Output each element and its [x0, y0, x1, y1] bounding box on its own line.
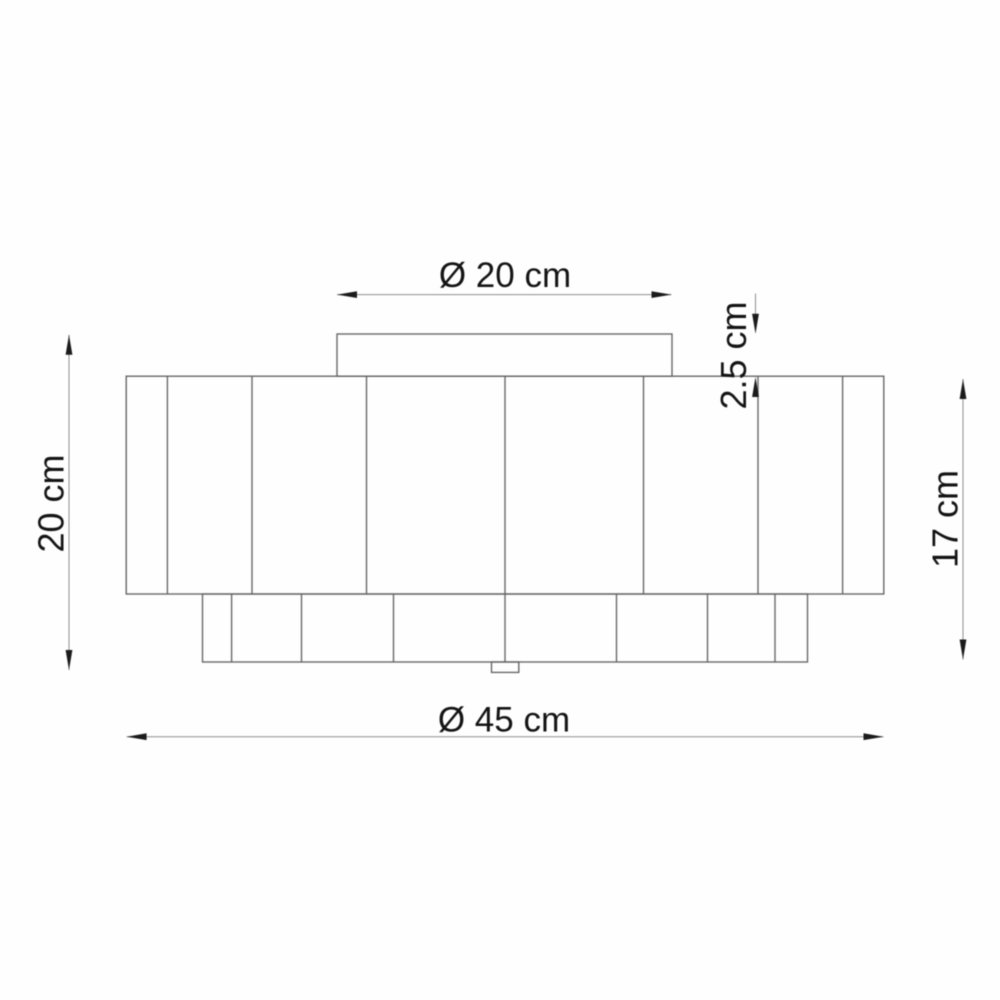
svg-text:Ø 20 cm: Ø 20 cm: [439, 256, 571, 295]
svg-text:Ø 45 cm: Ø 45 cm: [438, 701, 570, 740]
svg-text:20 cm: 20 cm: [31, 454, 72, 552]
svg-text:2.5 cm: 2.5 cm: [713, 301, 754, 409]
svg-text:17 cm: 17 cm: [925, 470, 966, 568]
